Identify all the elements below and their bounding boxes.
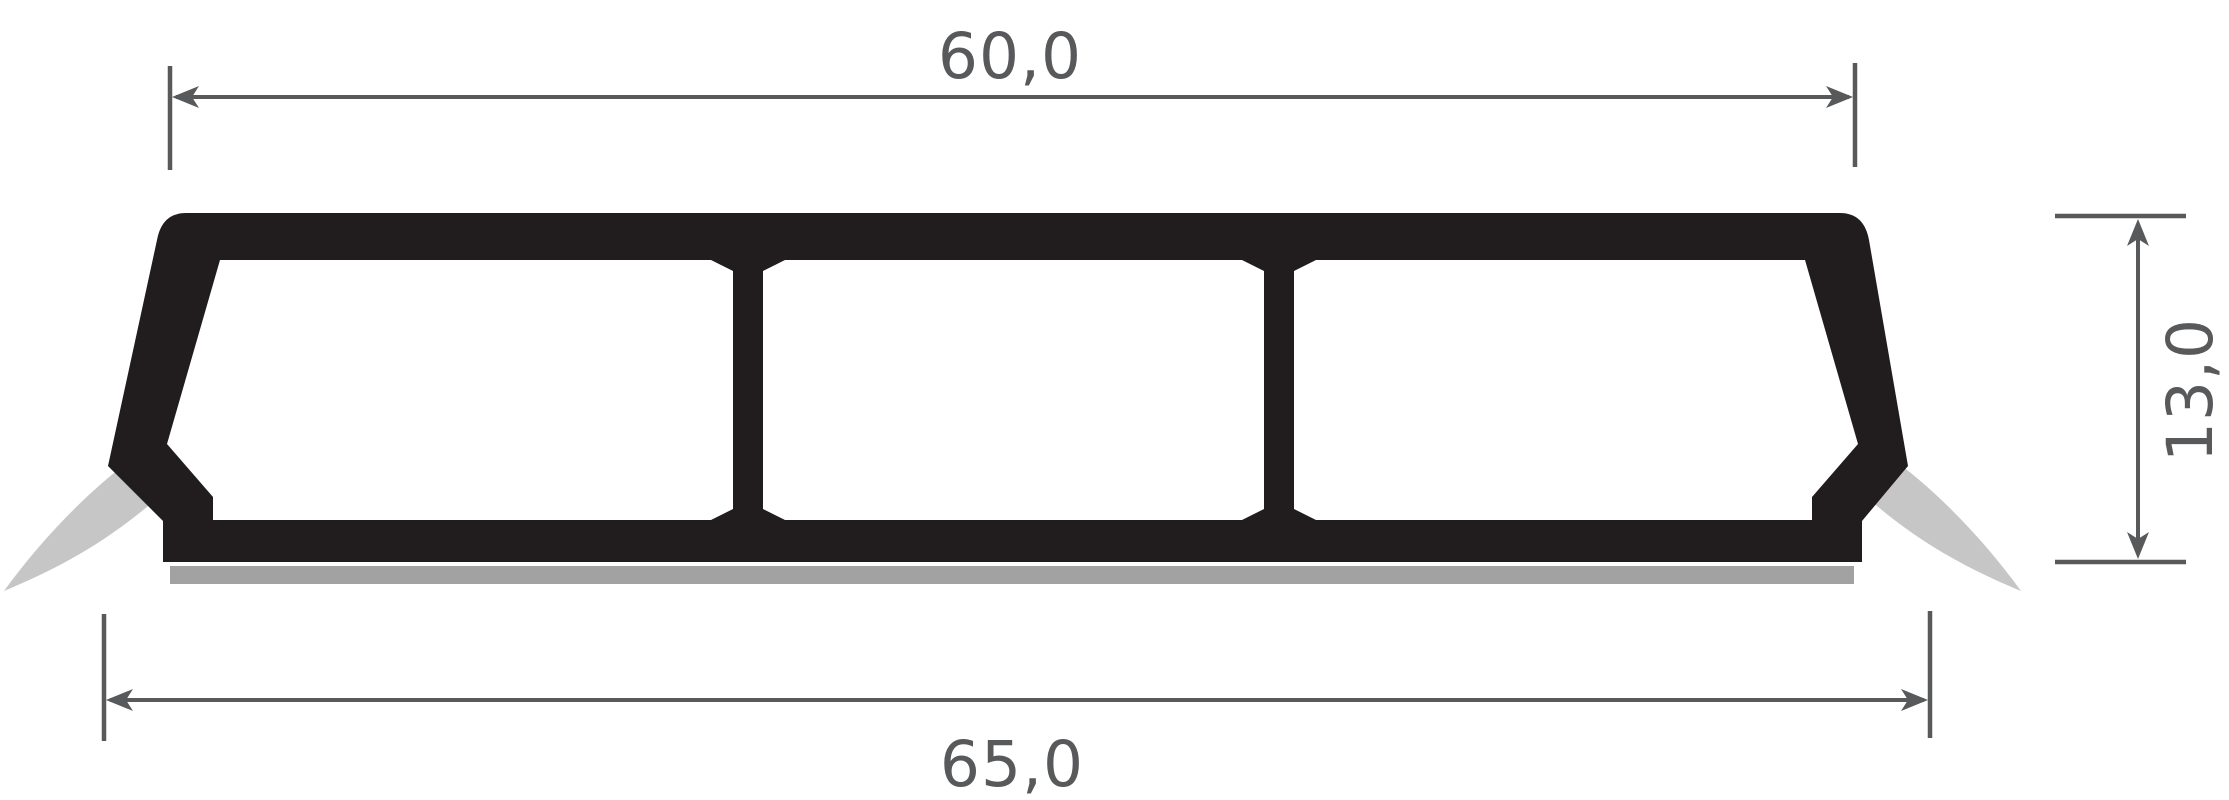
top-width-label: 60,0 <box>938 20 1082 93</box>
adhesive-strip <box>170 566 1854 584</box>
bottom-width-label: 65,0 <box>940 728 1084 800</box>
height-dimension: 13,0 <box>2055 216 2227 562</box>
profile-body <box>108 213 1908 562</box>
top-width-dimension: 60,0 <box>170 20 1855 170</box>
bottom-width-dimension: 65,0 <box>104 611 1930 800</box>
drawing-canvas: 60,0 65,0 13,0 <box>0 0 2229 800</box>
profile-cross-section-drawing: 60,0 65,0 13,0 <box>0 0 2229 800</box>
height-label: 13,0 <box>2154 318 2227 462</box>
